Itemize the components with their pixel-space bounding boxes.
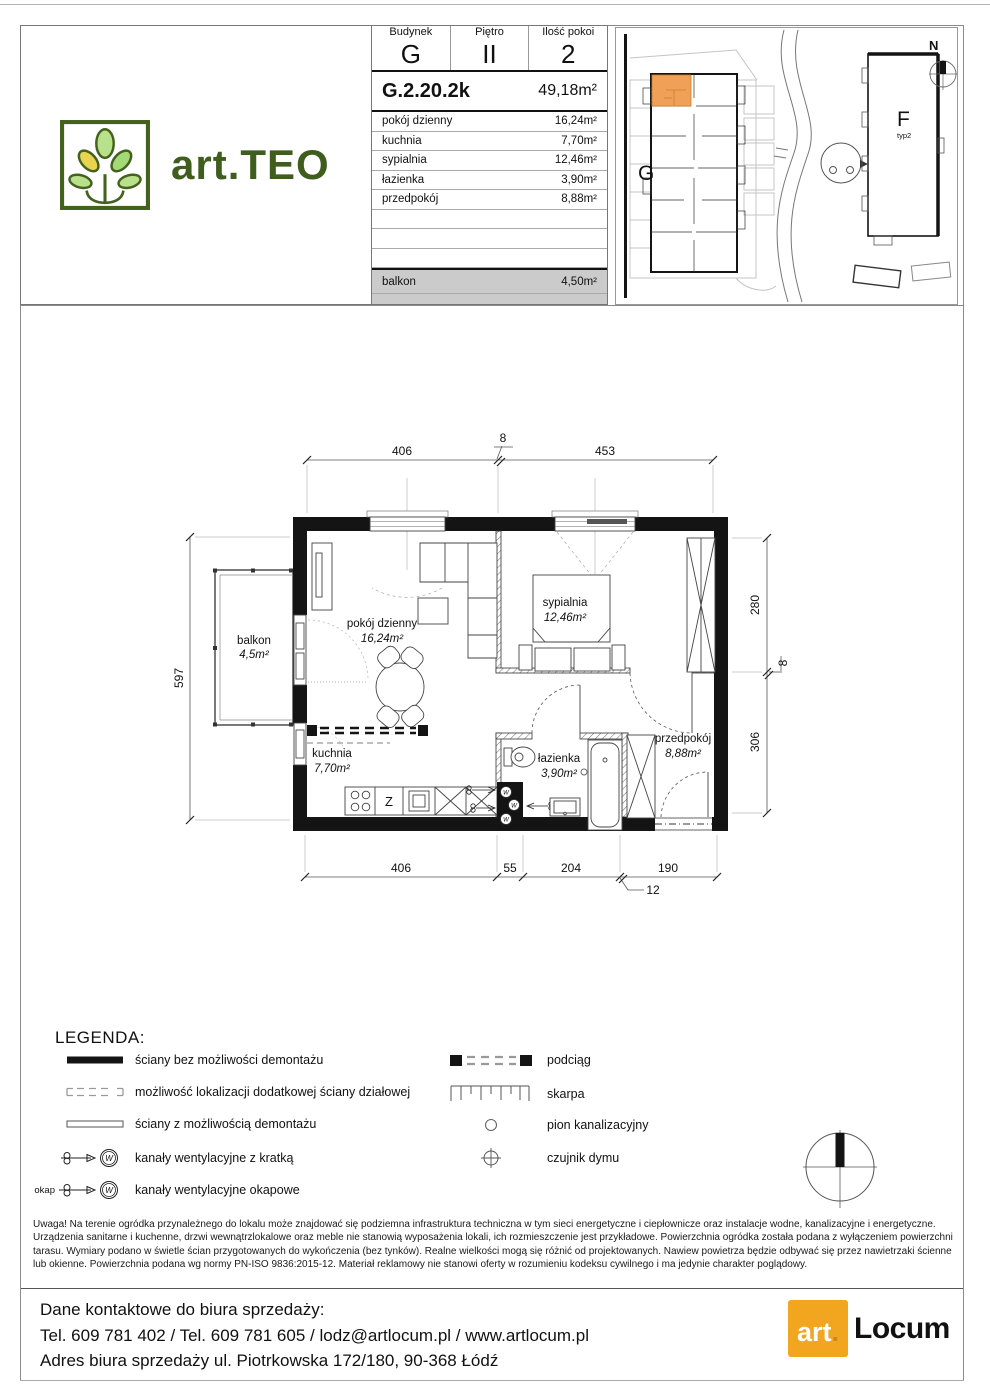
room-name: sypialnia — [382, 154, 555, 166]
balcony-row: balkon 4,50m² — [372, 268, 607, 294]
room-area: 7,70m² — [561, 135, 597, 147]
brand-logo-cell: art.TEO — [20, 25, 372, 305]
artteo-logo-icon — [59, 119, 151, 211]
demountable-wall-icon — [65, 1119, 125, 1129]
room-area: 3,90m² — [561, 174, 597, 186]
compass — [795, 1122, 885, 1217]
artlocum-logo-icon: art. — [788, 1300, 848, 1357]
kitchen-label: kuchnia — [312, 748, 352, 760]
building-value: G — [401, 39, 421, 70]
table-row: pokój dzienny 16,24m² — [372, 112, 607, 132]
entrance-door — [655, 772, 712, 831]
bathroom-door — [532, 685, 580, 733]
table-row: łazienka 3,90m² — [372, 171, 607, 191]
balcony: balkon 4,5m² — [213, 569, 293, 727]
room-name: przedpokój — [382, 193, 561, 205]
legend-item: ściany z możliwością demontażu — [28, 1117, 316, 1131]
legend-title: LEGENDA: — [55, 1028, 145, 1048]
table-row-empty-gray — [372, 294, 607, 304]
dim-top-453: 453 — [595, 444, 615, 458]
legend-item: okap W kanały wentylacyjne okapowe — [28, 1178, 300, 1202]
dim-bottom-406: 406 — [391, 861, 411, 875]
dim-bottom-12: 12 — [646, 883, 660, 897]
bedroom-label: sypialnia — [543, 597, 588, 609]
footer-contact: Dane kontaktowe do biura sprzedaży: Tel.… — [40, 1297, 589, 1374]
living-furniture — [312, 543, 497, 730]
room-area: 16,24m² — [555, 115, 597, 127]
unit-data-table: Budynek G Piętro II Ilość pokoi 2 G.2.20… — [372, 25, 608, 305]
svg-text:W: W — [105, 1186, 114, 1195]
site-building-f-label: F — [897, 108, 910, 131]
table-row-empty — [372, 249, 607, 269]
floor-value: II — [482, 39, 496, 70]
rooms-count-cell: Ilość pokoi 2 — [529, 26, 607, 70]
floor-cell: Piętro II — [451, 26, 530, 70]
footer-divider — [20, 1288, 964, 1289]
table-row: przedpokój 8,88m² — [372, 190, 607, 210]
balcony-area: 4,50m² — [561, 276, 597, 288]
room-name: kuchnia — [382, 135, 561, 147]
table-row: kuchnia 7,70m² — [372, 132, 607, 152]
building-label: Budynek — [389, 26, 432, 38]
artlocum-logo-word: Locum — [854, 1312, 950, 1346]
disclaimer-paragraph: Uwaga! Na terenie ogródka przynależnego … — [33, 1218, 959, 1231]
dim-bottom-55: 55 — [503, 861, 517, 875]
hallway-furniture — [627, 735, 655, 818]
footer-line: Adres biura sprzedaży ul. Piotrkowska 17… — [40, 1348, 589, 1374]
svg-text:W: W — [105, 1154, 114, 1163]
legend-item: podciąg — [445, 1053, 591, 1067]
dim-right-306: 306 — [748, 732, 762, 752]
bathroom-area-label: 3,90m² — [541, 768, 578, 780]
floorplan-sheet: art.TEO Budynek G Piętro II Ilość pokoi … — [0, 0, 990, 1400]
dim-top-8: 8 — [500, 431, 507, 445]
building-cell: Budynek G — [372, 26, 451, 70]
disclaimer: Uwaga! Na terenie ogródka przynależnego … — [33, 1218, 959, 1271]
compass-icon — [795, 1122, 885, 1212]
dishwasher-label: Z — [385, 794, 393, 809]
rooms-count-label: Ilość pokoi — [542, 26, 594, 38]
balcony-area-label: 4,5m² — [239, 649, 270, 661]
legend-item: W kanały wentylacyjne z kratką — [28, 1146, 293, 1170]
site-building-f-type: typ2 — [897, 131, 911, 140]
dim-bottom-190: 190 — [658, 861, 678, 875]
floor-plan-drawing: 406 8 453 597 280 8 306 406 55 204 190 1… — [150, 420, 850, 940]
brand-name: art.TEO — [171, 141, 330, 189]
legend-item: skarpa — [445, 1085, 585, 1103]
site-building-g-label: G — [638, 162, 654, 185]
balcony-name: balkon — [382, 276, 561, 288]
disclaimer-paragraph: Urządzenia sanitarne i kuchenne, drzwi w… — [33, 1231, 959, 1271]
hallway-area-label: 8,88m² — [665, 748, 702, 760]
room-area: 12,46m² — [555, 154, 597, 166]
table-row-empty — [372, 229, 607, 249]
beam-podciag — [307, 725, 428, 743]
dim-top-406: 406 — [392, 444, 412, 458]
artlocum-logo: art. Locum — [788, 1300, 950, 1357]
balcony-label: balkon — [237, 635, 271, 647]
hallway-label: przedpokój — [655, 733, 711, 745]
living-label: pokój dzienny — [347, 618, 418, 630]
right-border — [963, 25, 964, 1380]
okap-label: okap — [34, 1185, 55, 1196]
dim-left-597: 597 — [172, 668, 186, 688]
kitchen-area-label: 7,70m² — [314, 763, 351, 775]
slope-icon — [450, 1085, 532, 1103]
bottom-line — [20, 1380, 964, 1381]
room-name: pokój dzienny — [382, 115, 555, 127]
highlighted-unit — [652, 75, 691, 106]
table-row-empty — [372, 210, 607, 230]
floor-label: Piętro — [475, 26, 504, 38]
footer-line: Dane kontaktowe do biura sprzedaży: — [40, 1297, 589, 1323]
room-name: łazienka — [382, 174, 561, 186]
bathroom-label: łazienka — [538, 753, 581, 765]
north-label: N — [929, 38, 938, 53]
sewage-stack-icon — [450, 1117, 532, 1133]
unit-table-header-row: Budynek G Piętro II Ilość pokoi 2 — [372, 26, 607, 72]
kitchen-furniture — [345, 787, 497, 815]
vent-hood-icon: W — [59, 1178, 125, 1202]
room-area: 8,88m² — [561, 193, 597, 205]
site-plan: G F typ2 N — [615, 27, 958, 305]
legend-item: pion kanalizacyjny — [445, 1117, 648, 1133]
beam-icon — [450, 1054, 532, 1067]
unit-total-area: 49,18m² — [538, 82, 597, 100]
unit-code: G.2.20.2k — [382, 80, 538, 103]
legend-item: czujnik dymu — [445, 1148, 619, 1168]
vent-grille-icon: W — [59, 1146, 125, 1170]
legend-item: możliwość lokalizacji dodatkowej ściany … — [28, 1085, 410, 1099]
living-area-label: 16,24m² — [361, 633, 404, 645]
bedroom-door — [630, 673, 692, 733]
legend-item: ściany bez możliwości demontażu — [28, 1053, 323, 1067]
dashed-wall-icon — [65, 1087, 125, 1097]
footer-line: Tel. 609 781 402 / Tel. 609 781 605 / lo… — [40, 1323, 589, 1349]
dim-bottom-204: 204 — [561, 861, 581, 875]
top-hairline — [0, 4, 990, 5]
rooms-count-value: 2 — [561, 39, 575, 70]
smoke-detector-icon — [450, 1148, 532, 1168]
bedroom-area-label: 12,46m² — [544, 612, 587, 624]
table-row: sypialnia 12,46m² — [372, 151, 607, 171]
site-plan-drawing: G F typ2 N — [616, 28, 957, 304]
dim-right-8: 8 — [776, 659, 790, 666]
floor-plan: 406 8 453 597 280 8 306 406 55 204 190 1… — [150, 420, 850, 940]
unit-code-row: G.2.20.2k 49,18m² — [372, 72, 607, 112]
dim-right-280: 280 — [748, 595, 762, 615]
